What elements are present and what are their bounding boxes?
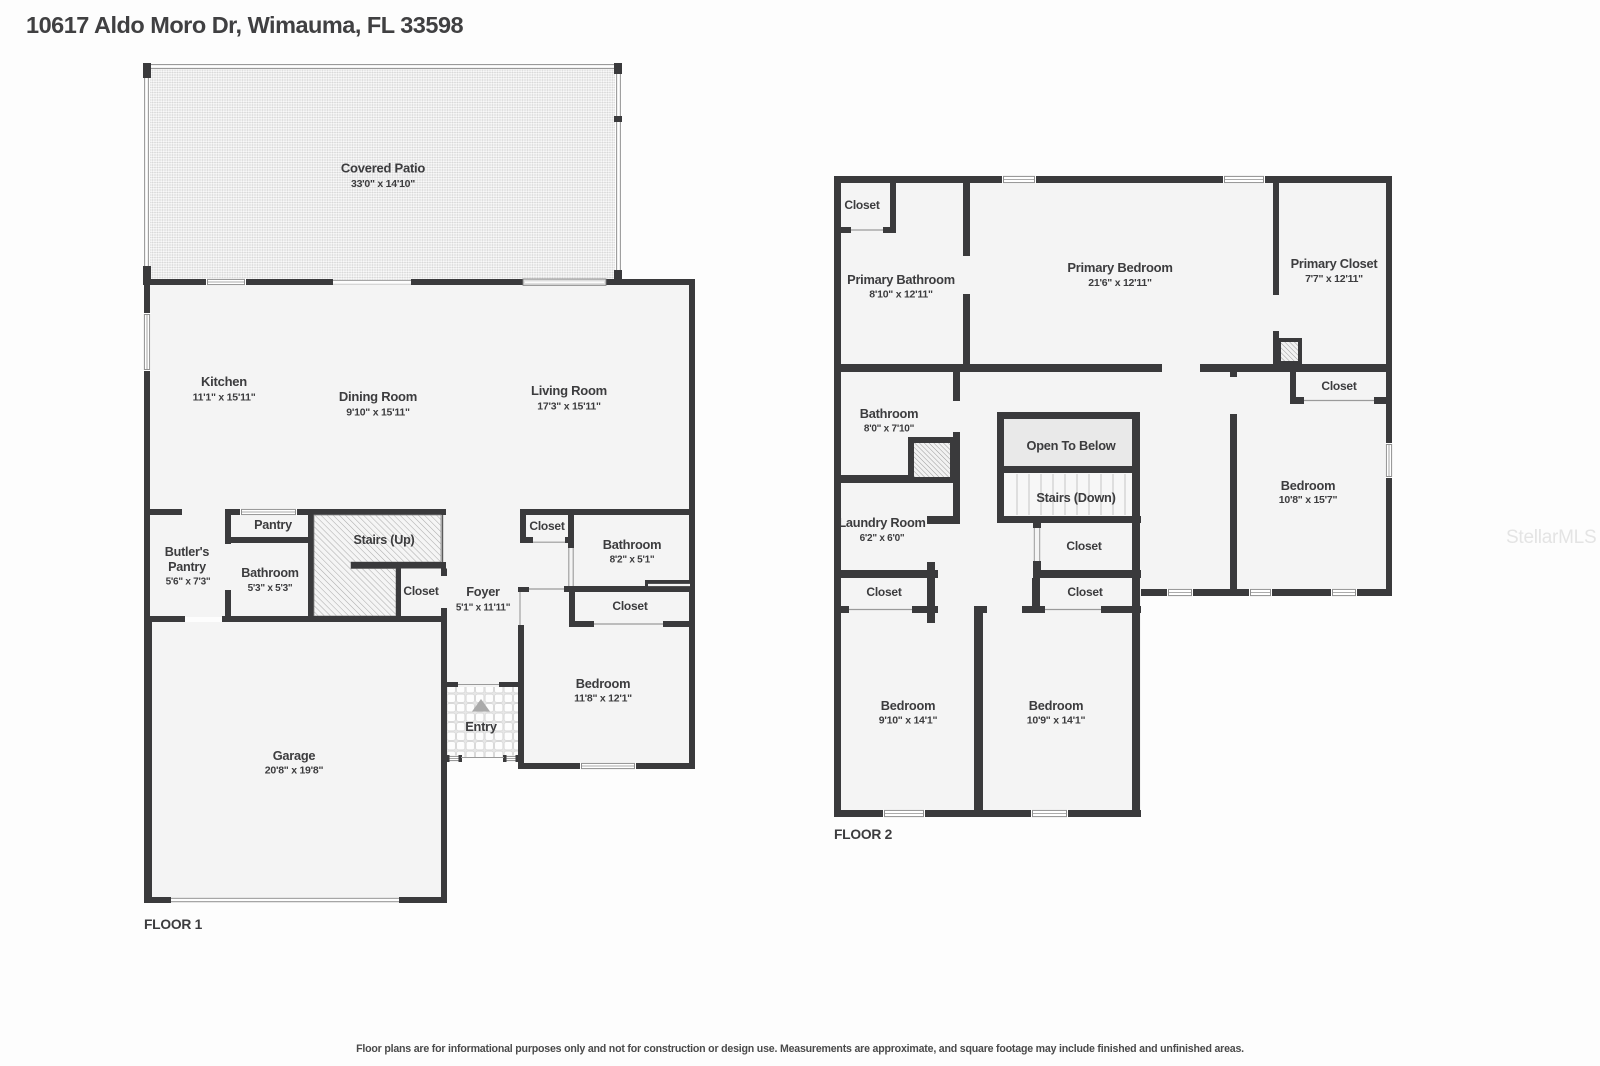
svg-text:Stairs (Up): Stairs (Up) xyxy=(354,533,415,547)
svg-text:Closet: Closet xyxy=(529,519,564,533)
svg-text:7'7" x 12'11": 7'7" x 12'11" xyxy=(1305,273,1363,285)
svg-text:FLOOR 2: FLOOR 2 xyxy=(834,827,893,842)
svg-text:Bedroom: Bedroom xyxy=(1281,478,1335,493)
svg-text:Kitchen: Kitchen xyxy=(201,374,247,389)
svg-text:33'0" x 14'10": 33'0" x 14'10" xyxy=(351,178,415,190)
svg-text:Entry: Entry xyxy=(465,719,498,734)
svg-text:Primary Bathroom: Primary Bathroom xyxy=(847,272,955,287)
svg-text:Garage: Garage xyxy=(273,748,316,763)
svg-text:10'9" x 14'1": 10'9" x 14'1" xyxy=(1027,715,1086,727)
svg-text:Primary Closet: Primary Closet xyxy=(1291,256,1379,271)
svg-text:Bathroom: Bathroom xyxy=(860,406,918,421)
svg-text:Pantry: Pantry xyxy=(168,560,206,574)
svg-text:Closet: Closet xyxy=(866,585,901,599)
svg-text:StellarMLS: StellarMLS xyxy=(1506,527,1596,548)
svg-text:Closet: Closet xyxy=(1067,585,1102,599)
svg-text:Laundry Room: Laundry Room xyxy=(838,515,925,530)
svg-text:Bathroom: Bathroom xyxy=(603,537,661,552)
svg-text:Primary Bedroom: Primary Bedroom xyxy=(1067,260,1172,275)
svg-text:Pantry: Pantry xyxy=(254,518,292,532)
svg-text:Butler's: Butler's xyxy=(165,545,210,559)
svg-text:FLOOR 1: FLOOR 1 xyxy=(144,917,203,932)
svg-text:Bedroom: Bedroom xyxy=(881,698,935,713)
svg-text:5'3" x 5'3": 5'3" x 5'3" xyxy=(248,583,293,594)
svg-text:Covered Patio: Covered Patio xyxy=(341,161,425,176)
svg-text:Foyer: Foyer xyxy=(466,584,500,599)
svg-text:8'10" x 12'11": 8'10" x 12'11" xyxy=(869,289,933,301)
svg-text:Closet: Closet xyxy=(1066,539,1101,553)
svg-text:11'8" x 12'1": 11'8" x 12'1" xyxy=(574,693,632,705)
svg-text:Floor plans are for informatio: Floor plans are for informational purpos… xyxy=(356,1043,1244,1055)
svg-text:17'3" x 15'11": 17'3" x 15'11" xyxy=(537,401,601,413)
svg-text:Closet: Closet xyxy=(612,599,647,613)
svg-text:Bathroom: Bathroom xyxy=(241,566,299,580)
svg-text:Living Room: Living Room xyxy=(531,383,607,398)
svg-text:Closet: Closet xyxy=(1321,379,1356,393)
svg-text:8'2" x 5'1": 8'2" x 5'1" xyxy=(610,555,655,566)
svg-text:Stairs (Down): Stairs (Down) xyxy=(1036,490,1115,505)
svg-text:5'6" x 7'3": 5'6" x 7'3" xyxy=(166,577,211,588)
svg-text:21'6" x 12'11": 21'6" x 12'11" xyxy=(1088,277,1152,289)
svg-text:9'10" x 14'1": 9'10" x 14'1" xyxy=(879,715,938,727)
svg-text:Open To Below: Open To Below xyxy=(1027,438,1116,453)
svg-text:Dining Room: Dining Room xyxy=(339,389,417,404)
svg-text:Bedroom: Bedroom xyxy=(576,676,630,691)
svg-text:10617 Aldo Moro Dr, Wimauma, F: 10617 Aldo Moro Dr, Wimauma, FL 33598 xyxy=(26,12,464,38)
svg-text:9'10" x 15'11": 9'10" x 15'11" xyxy=(346,407,410,419)
svg-text:Bedroom: Bedroom xyxy=(1029,698,1083,713)
svg-text:5'1" x 11'11": 5'1" x 11'11" xyxy=(456,603,511,614)
svg-text:6'2" x 6'0": 6'2" x 6'0" xyxy=(860,533,905,544)
svg-text:11'1" x 15'11": 11'1" x 15'11" xyxy=(193,392,256,404)
svg-text:8'0" x 7'10": 8'0" x 7'10" xyxy=(864,424,915,435)
svg-text:10'8" x 15'7": 10'8" x 15'7" xyxy=(1279,494,1338,506)
svg-text:Closet: Closet xyxy=(844,198,879,212)
svg-text:20'8" x 19'8": 20'8" x 19'8" xyxy=(265,765,324,777)
svg-text:Closet: Closet xyxy=(403,584,438,598)
